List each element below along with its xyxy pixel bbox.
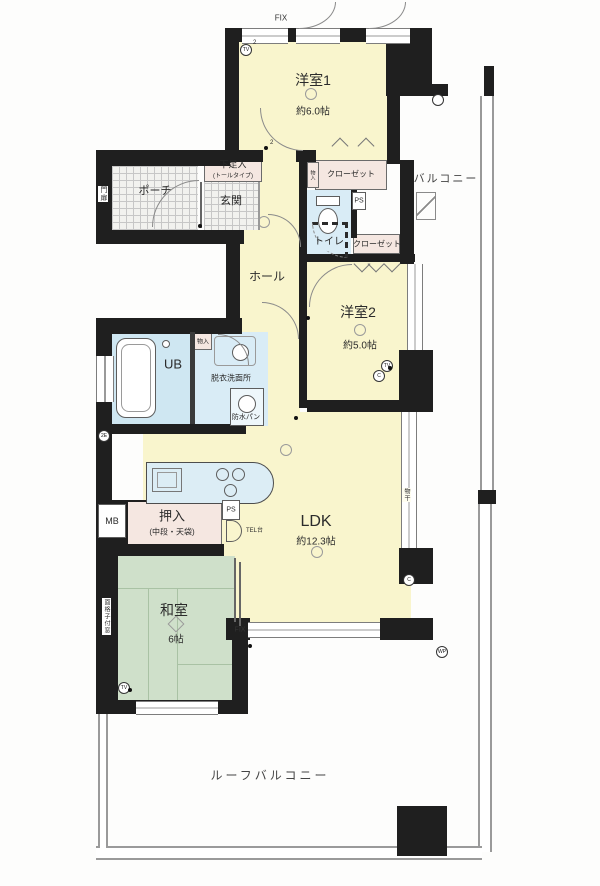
casement-window — [366, 28, 410, 44]
dot — [306, 316, 310, 320]
wall — [380, 618, 433, 640]
wall — [387, 96, 400, 164]
label-drying-fixture: 物干 — [402, 488, 411, 502]
outlet-marker: C — [403, 574, 415, 586]
tatami-line — [112, 588, 235, 589]
wall — [96, 318, 242, 334]
wall — [400, 160, 414, 264]
dot — [388, 366, 392, 370]
wall — [96, 424, 246, 434]
roof-balcony-railing — [98, 714, 108, 848]
fix-window — [242, 28, 288, 44]
wall — [112, 544, 224, 556]
label-waterproof-pan: 防水パン — [232, 412, 260, 422]
roof-balcony-railing — [478, 504, 492, 852]
faucet-marker — [432, 94, 444, 106]
label-roof-balcony: ルーフバルコニー — [210, 767, 329, 784]
room-label-washroom: 脱衣洗面所 — [211, 373, 251, 384]
label-monoire-wash: 物入 — [197, 337, 209, 346]
casement-window — [296, 28, 340, 44]
label-grated-window: 面格子付窓 — [102, 598, 111, 635]
stove-burner — [216, 468, 229, 481]
ceiling-light-icon — [311, 546, 323, 558]
room-label-washitsu: 和室 — [160, 600, 188, 620]
label-oshiire-sub: (中段・天袋) — [149, 527, 194, 538]
room-label-yoshitsu2: 洋室2 — [340, 302, 376, 322]
outlet-count: 2 — [253, 40, 256, 46]
wall — [190, 332, 195, 424]
label-tel-stand: TEL台 — [246, 525, 263, 534]
dot — [128, 688, 132, 692]
wall — [96, 230, 244, 244]
dot — [294, 416, 298, 420]
pillar — [397, 806, 447, 856]
label-shoe-box: 下足入 — [219, 158, 246, 171]
label-ps-upper: PS — [354, 198, 363, 205]
outlet-marker: 2E — [98, 430, 110, 442]
wall — [478, 490, 496, 504]
room-label-ldk: LDK — [300, 513, 331, 531]
dot — [264, 146, 268, 150]
sliding-door — [239, 562, 241, 626]
wall — [484, 66, 494, 96]
label-closet-upper: クローゼット — [327, 169, 375, 180]
ceiling-light-icon — [280, 444, 292, 456]
room-label-toilet: トイレ — [314, 233, 344, 248]
label-gate: 門扉 — [98, 186, 108, 202]
label-mb: MB — [105, 516, 119, 526]
room-size-yoshitsu1: 約6.0帖 — [296, 103, 330, 118]
ldk-window — [401, 412, 417, 548]
outlet-marker: C — [373, 370, 385, 382]
room-size-yoshitsu2: 約5.0帖 — [343, 337, 377, 352]
window-swing-arc — [369, 2, 406, 29]
outlet-count: 2 — [270, 140, 273, 146]
sliding-door — [234, 558, 236, 622]
entrance-door-leaf — [200, 182, 202, 228]
bathtub-inner — [121, 344, 151, 412]
washitsu-window — [136, 701, 218, 715]
stove-burner — [232, 468, 245, 481]
bath-window — [96, 356, 114, 402]
window-swing-arc — [299, 2, 336, 29]
ldk-terrace-window — [248, 622, 380, 638]
tatami-line — [148, 588, 149, 702]
label-fix-bottom: FIX — [235, 627, 246, 634]
room-label-hall: ホール — [249, 268, 285, 285]
balcony-railing — [480, 96, 494, 494]
wall — [299, 258, 307, 408]
label-closet-lower: クローゼット — [353, 239, 401, 250]
label-shoe-box-sub: (トールタイプ) — [213, 171, 253, 180]
label-fix-top: FIX — [275, 14, 287, 23]
outlet-marker: WP — [436, 646, 448, 658]
wall — [296, 150, 316, 162]
washer-icon — [238, 395, 256, 413]
wall — [96, 150, 230, 166]
dot — [198, 224, 202, 228]
label-monoire-upper: 物入 — [310, 170, 317, 180]
label-balcony: バルコニー — [414, 170, 479, 186]
ceiling-light-icon — [354, 324, 366, 336]
shower-icon — [162, 340, 170, 348]
room-label-unit-bath: UB — [164, 357, 182, 372]
room-size-washitsu: 6帖 — [168, 631, 184, 646]
yoshitsu2-window — [407, 264, 423, 350]
label-ps-lower: PS — [226, 507, 235, 514]
balcony-partition — [416, 192, 436, 220]
wall — [399, 350, 433, 412]
dot — [248, 644, 252, 648]
wall — [225, 28, 239, 162]
stove-burner — [224, 484, 237, 497]
toilet-tank — [316, 196, 340, 206]
tatami-line — [177, 664, 235, 665]
room-label-genkan: 玄関 — [220, 192, 242, 208]
tv-outlet-marker: TV — [240, 44, 252, 56]
floor-plan: TV TV C C TV WP 2E 2 2 洋室1 約6.0帖 洋室2 約5.… — [0, 0, 600, 886]
room-label-yoshitsu1: 洋室1 — [295, 70, 331, 90]
kitchen-sink-inner — [157, 472, 177, 488]
room-size-ldk: 約12.3帖 — [296, 533, 335, 548]
label-oshiire: 押入 — [159, 506, 185, 525]
room-label-porch: ポーチ — [139, 182, 172, 198]
